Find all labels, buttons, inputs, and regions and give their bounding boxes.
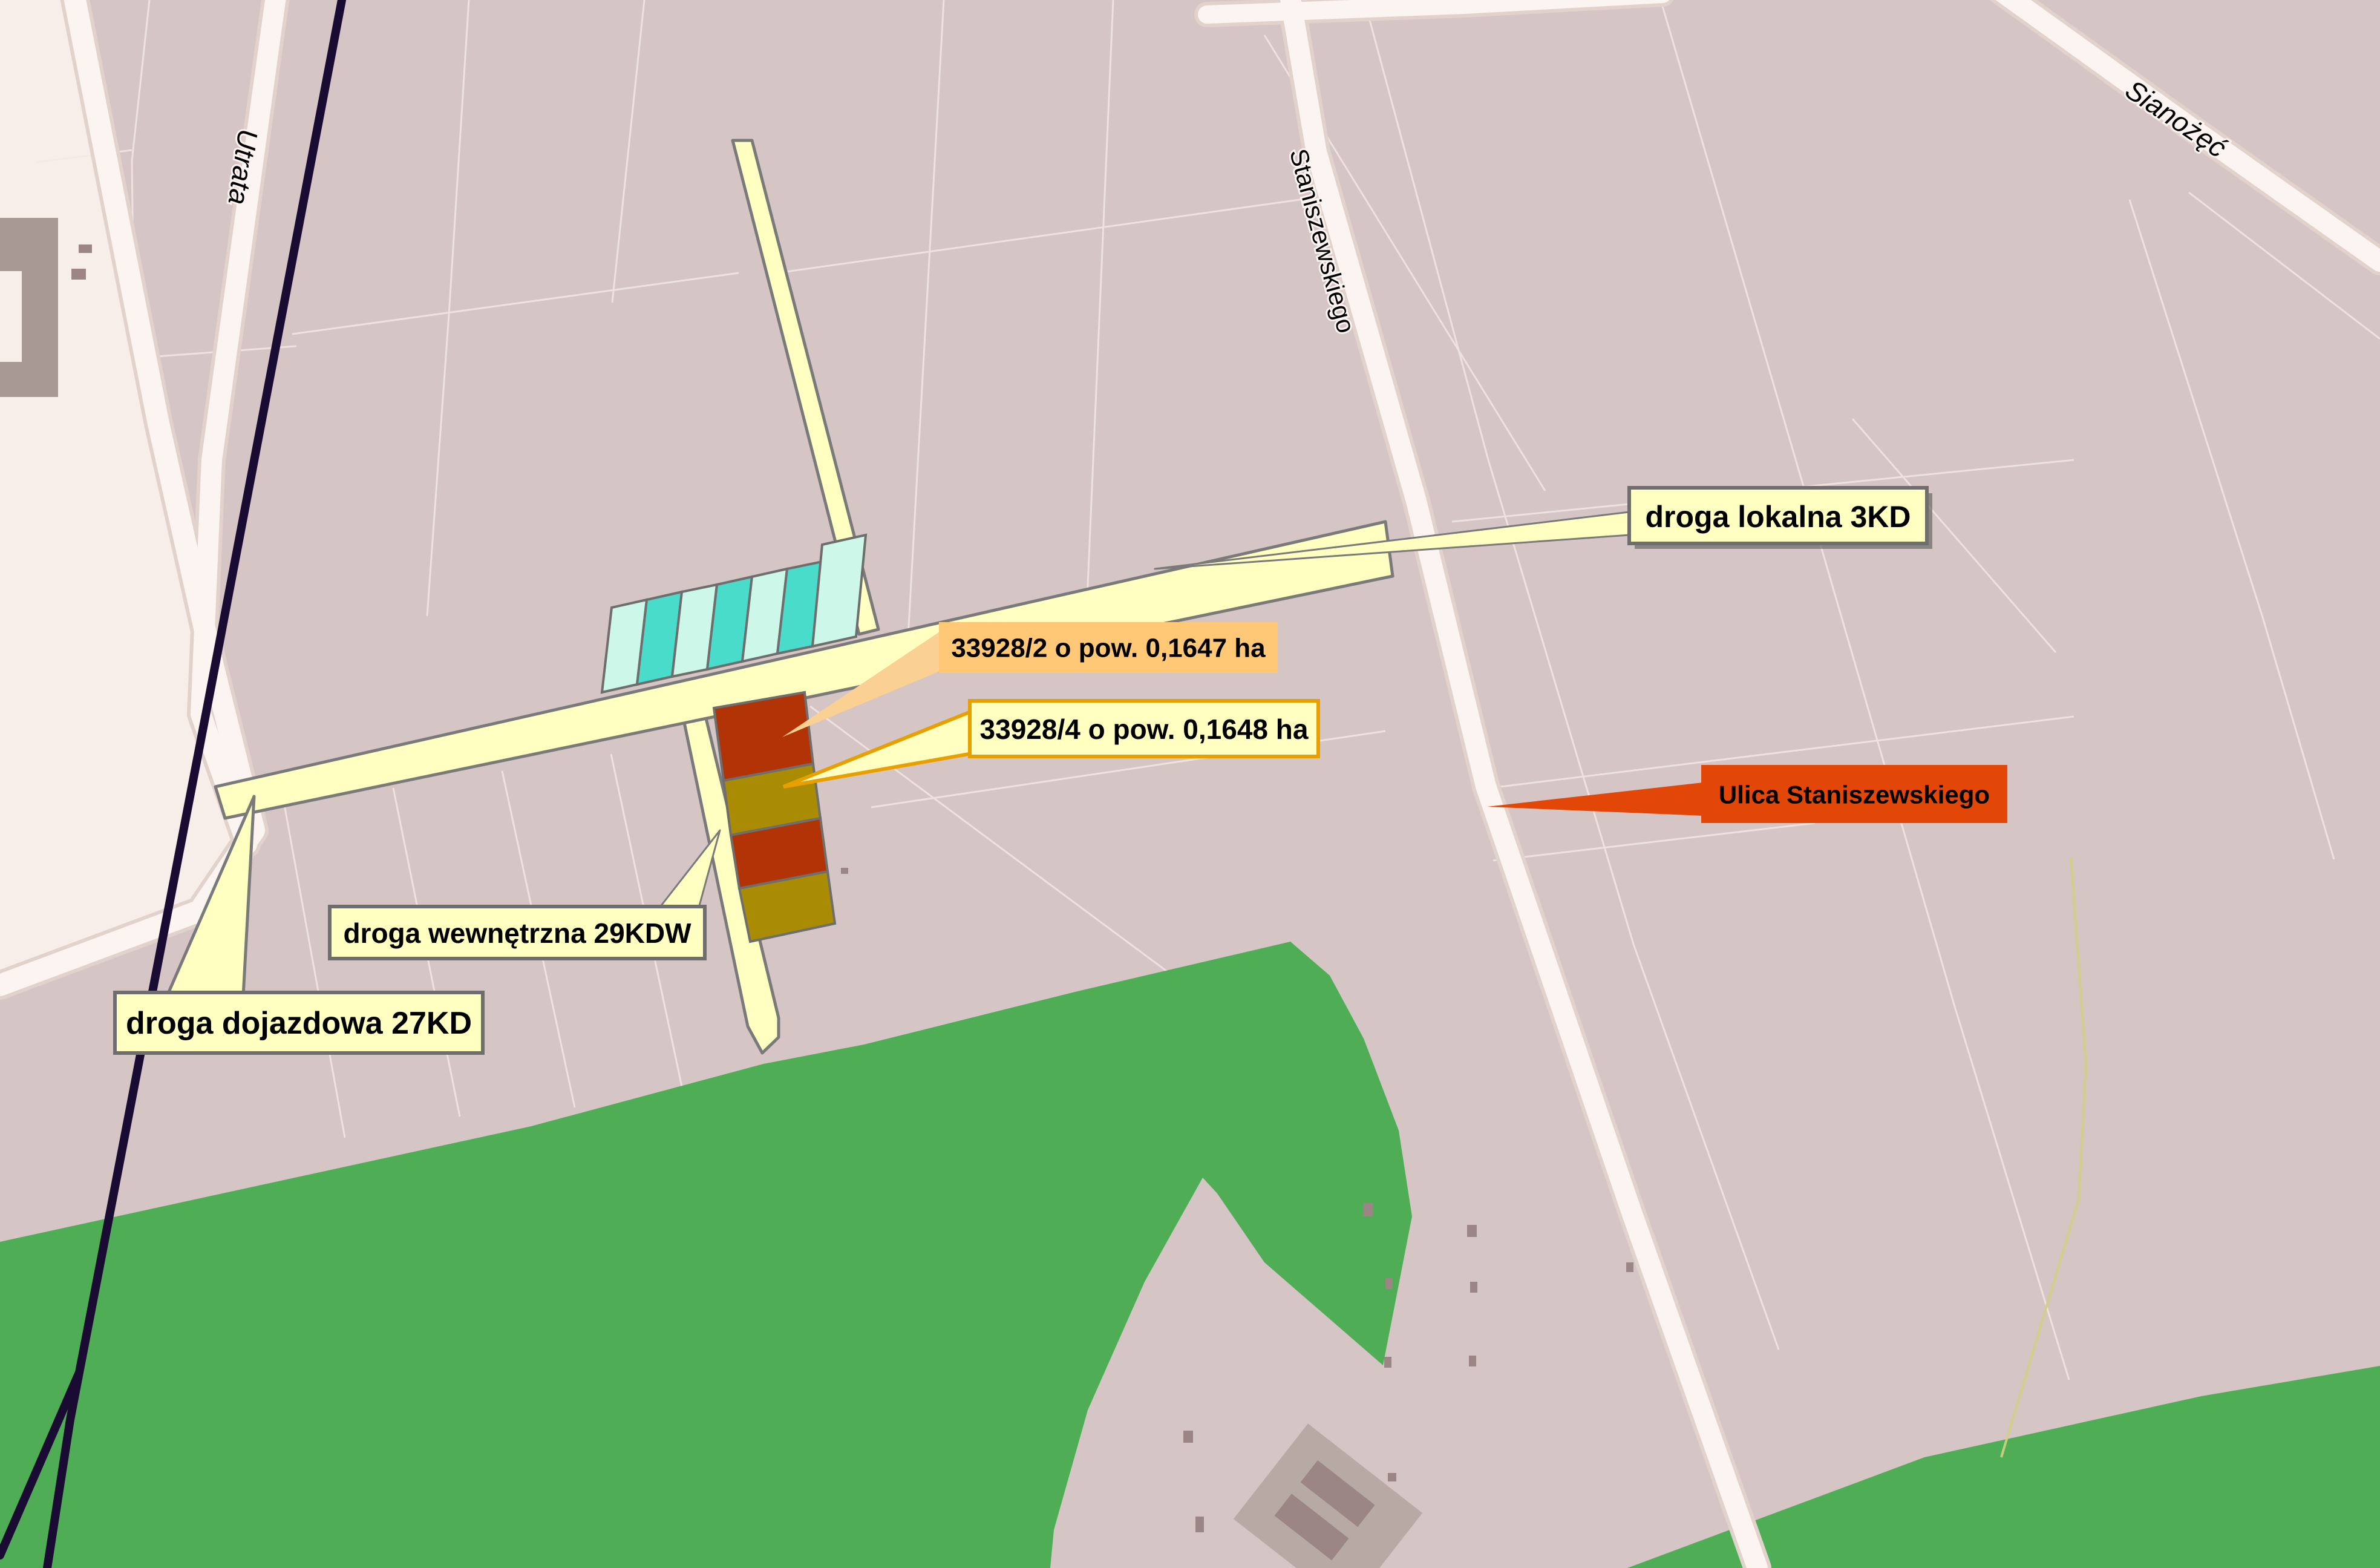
callout-ulica-staniszewskiego: Ulica Staniszewskiego	[1701, 765, 2007, 823]
label-parcel-33928-4: 33928/4 o pow. 0,1648 ha	[980, 713, 1309, 745]
label-droga-dojazdowa-27kd: droga dojazdowa 27KD	[126, 1006, 472, 1041]
callout-parcel-33928-2: 33928/2 o pow. 0,1647 ha	[939, 622, 1278, 673]
building-small	[71, 269, 86, 280]
label-droga-wewnetrzna-29kdw: droga wewnętrzna 29KDW	[343, 917, 691, 949]
cyan-parcel-7	[812, 535, 866, 646]
label-ulica-staniszewskiego: Ulica Staniszewskiego	[1719, 781, 1990, 809]
label-parcel-33928-2: 33928/2 o pow. 0,1647 ha	[951, 634, 1266, 663]
callout-droga-wewnetrzna-29kdw: droga wewnętrzna 29KDW	[330, 907, 705, 959]
callout-parcel-33928-4: 33928/4 o pow. 0,1648 ha	[970, 701, 1318, 756]
building-small	[79, 244, 92, 253]
callout-droga-dojazdowa-27kd: droga dojazdowa 27KD	[115, 992, 483, 1053]
label-droga-lokalna-3kd: droga lokalna 3KD	[1646, 500, 1911, 534]
map-canvas[interactable]: droga lokalna 3KD 33928/2 o pow. 0,1647 …	[0, 0, 2380, 1568]
callout-droga-lokalna-3kd: droga lokalna 3KD	[1629, 488, 1932, 549]
